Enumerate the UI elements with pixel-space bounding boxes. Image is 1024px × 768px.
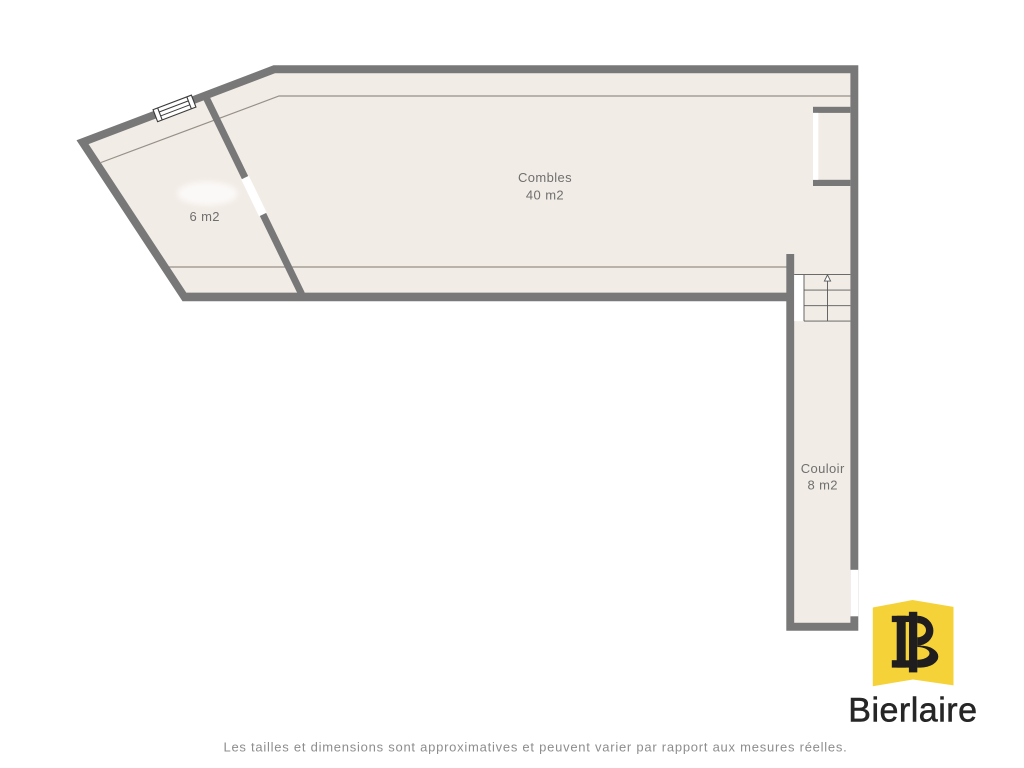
svg-text:Les tailles et dimensions sont: Les tailles et dimensions sont approxima… bbox=[223, 740, 847, 755]
svg-text:8 m2: 8 m2 bbox=[807, 478, 838, 493]
svg-text:Bierlaire: Bierlaire bbox=[848, 692, 977, 730]
svg-text:6 m2: 6 m2 bbox=[189, 209, 220, 224]
svg-text:Combles: Combles bbox=[518, 170, 572, 185]
svg-text:40 m2: 40 m2 bbox=[526, 188, 564, 203]
svg-text:Couloir: Couloir bbox=[801, 461, 845, 476]
